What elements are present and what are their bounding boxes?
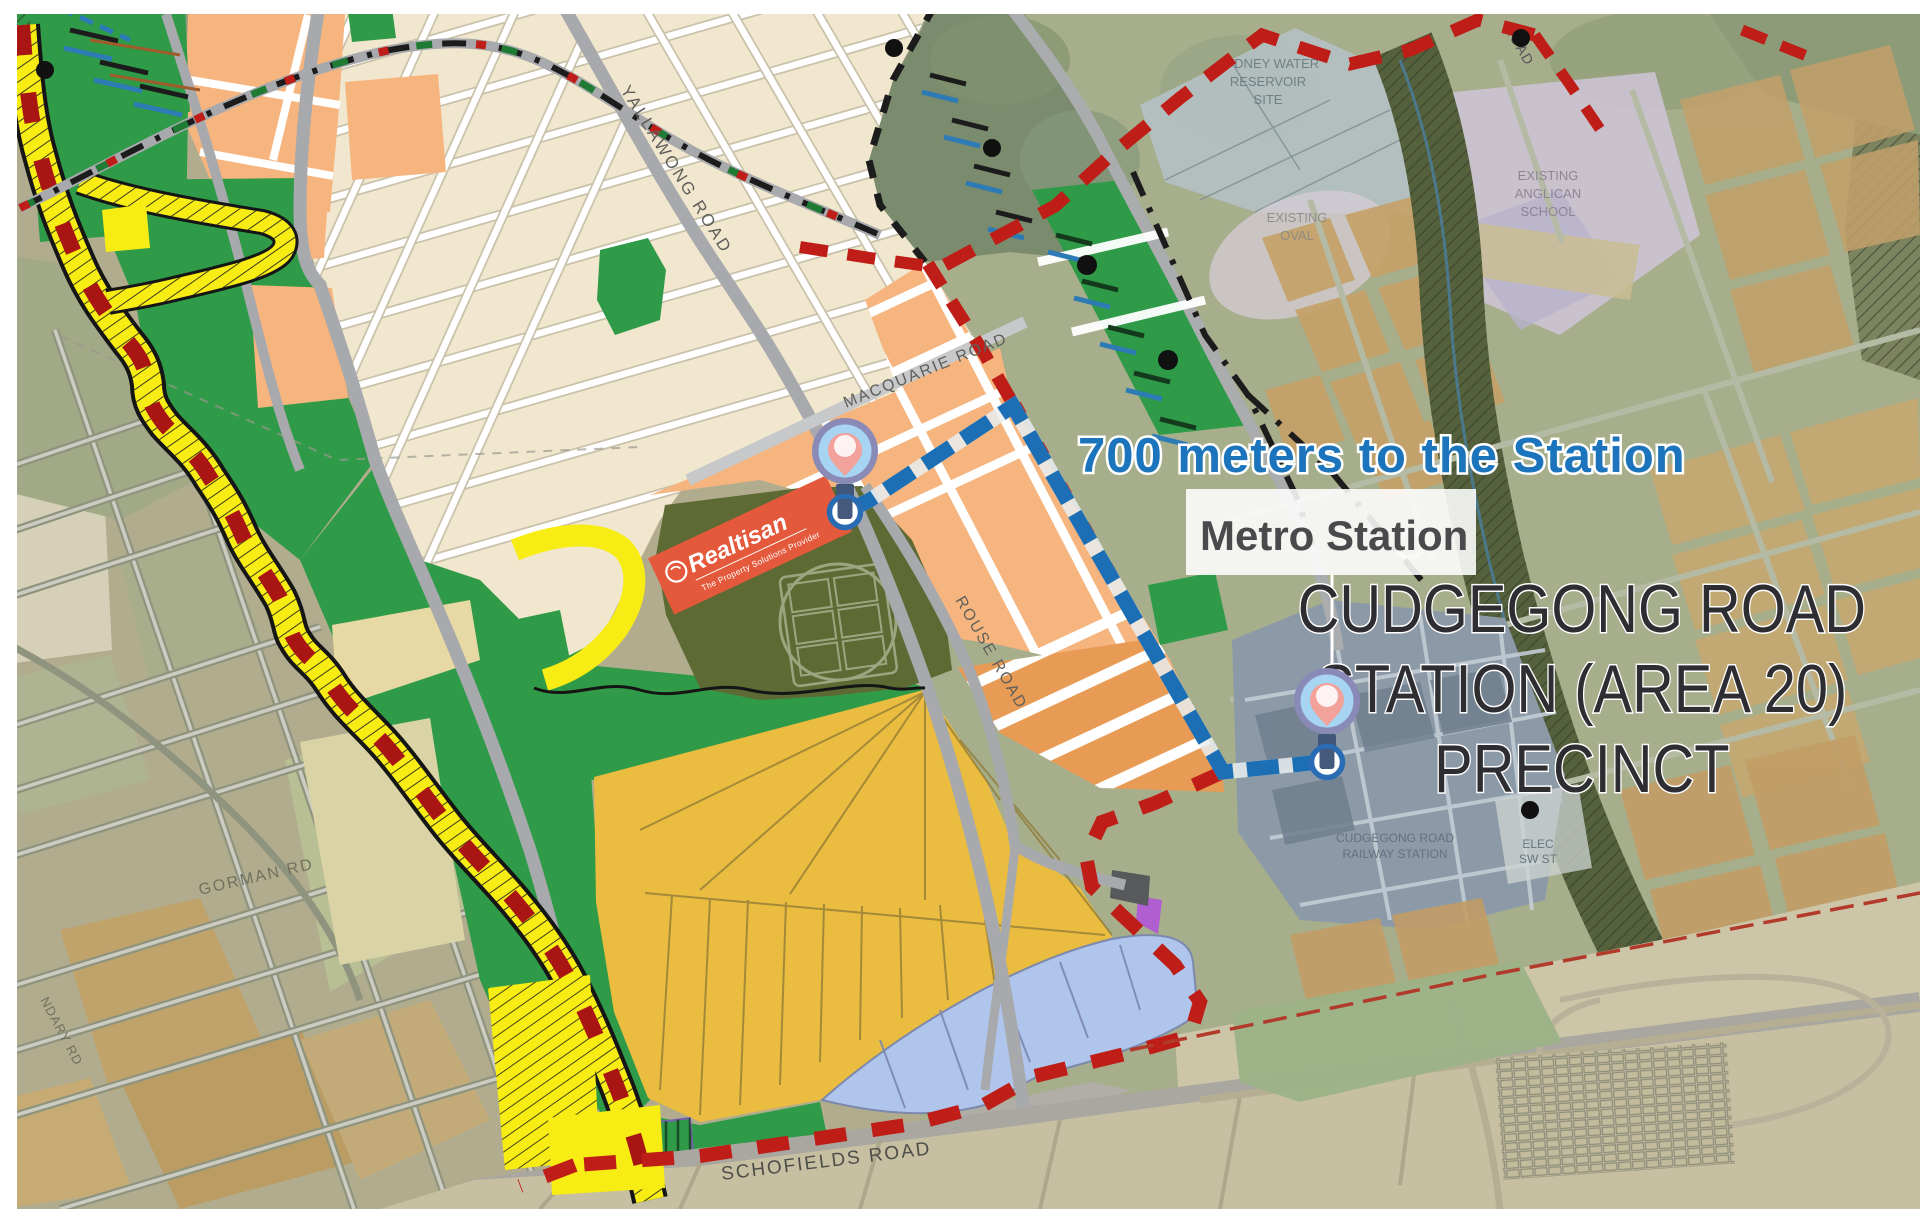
svg-text:700 meters to the Station: 700 meters to the Station — [1078, 429, 1686, 483]
svg-text:Metro Station: Metro Station — [1200, 512, 1468, 559]
svg-text:SCHOOL: SCHOOL — [1521, 204, 1576, 219]
svg-text:CUDGEGONG ROAD: CUDGEGONG ROAD — [1298, 572, 1866, 647]
svg-text:SITE: SITE — [1254, 92, 1283, 107]
svg-text:ELEC: ELEC — [1522, 837, 1554, 851]
svg-text:SW ST: SW ST — [1519, 852, 1558, 866]
svg-text:RESERVOIR: RESERVOIR — [1230, 74, 1306, 89]
svg-text:EXISTING: EXISTING — [1518, 168, 1579, 183]
svg-text:CUDGEGONG ROAD: CUDGEGONG ROAD — [1336, 831, 1454, 845]
svg-text:EXISTING: EXISTING — [1267, 210, 1328, 225]
svg-text:OVAL: OVAL — [1280, 228, 1314, 243]
svg-text:PRECINCT: PRECINCT — [1434, 732, 1729, 807]
svg-text:RAILWAY STATION: RAILWAY STATION — [1342, 847, 1447, 861]
svg-text:ANGLICAN: ANGLICAN — [1515, 186, 1581, 201]
svg-text:STATION (AREA 20): STATION (AREA 20) — [1316, 652, 1847, 727]
